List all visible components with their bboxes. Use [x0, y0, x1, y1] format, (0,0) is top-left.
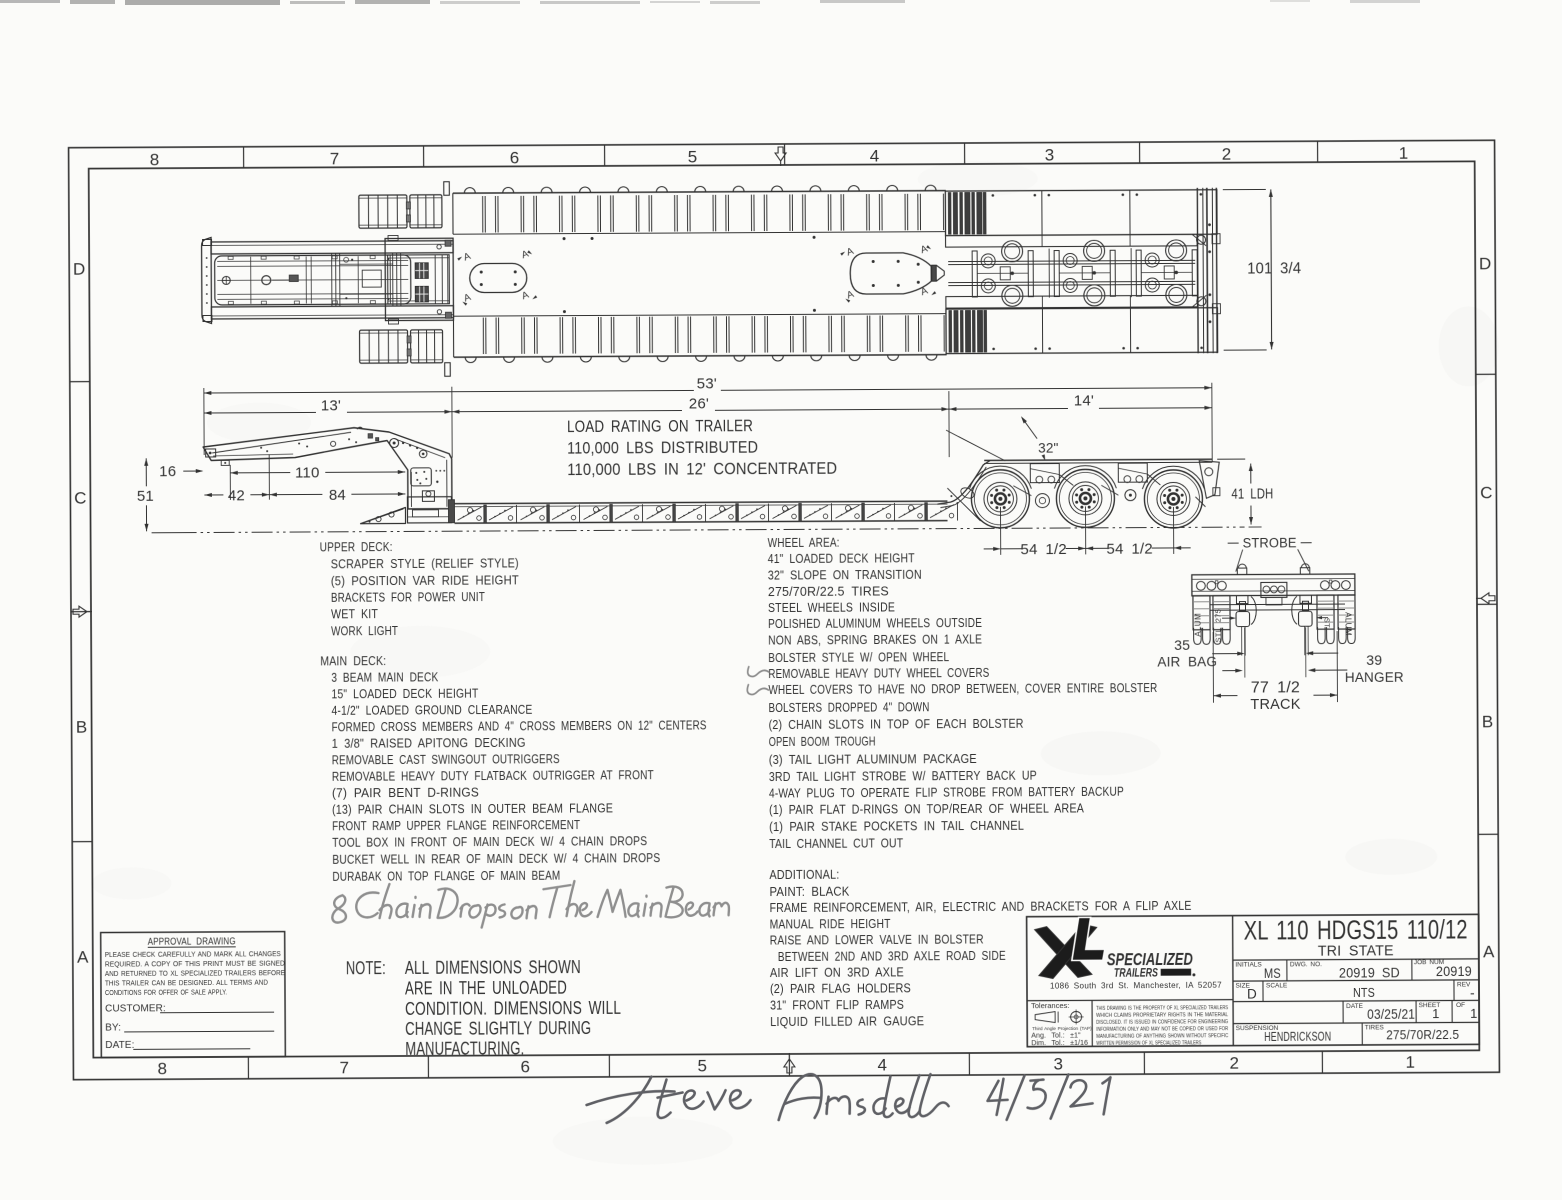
svg-text:20919: 20919 — [1436, 964, 1472, 979]
svg-text:MANUFACTURING.: MANUFACTURING. — [405, 1038, 524, 1059]
svg-text:1: 1 — [1405, 1053, 1415, 1072]
svg-text:16: 16 — [159, 463, 176, 480]
svg-text:DWG. NO.: DWG. NO. — [1290, 961, 1322, 968]
svg-text:8: 8 — [158, 1059, 168, 1078]
svg-text:39: 39 — [1366, 652, 1382, 668]
svg-text:MANUFACTURING OF ANYTHING SHOW: MANUFACTURING OF ANYTHING SHOWN WITHOUT … — [1096, 1033, 1228, 1040]
svg-text:8: 8 — [150, 150, 160, 169]
svg-text:OF: OF — [1456, 1002, 1465, 1009]
svg-text:WHICH CLAIMS PROPRIETARY RIGHT: WHICH CLAIMS PROPRIETARY RIGHTS IN THE M… — [1096, 1012, 1228, 1019]
svg-text:REV: REV — [1457, 981, 1471, 988]
svg-text:1086 South 3rd St. Manchester: 1086 South 3rd St. Manchester, IA 52057 — [1050, 981, 1222, 991]
svg-text:110,000 LBS DISTRIBUTED: 110,000 LBS DISTRIBUTED — [567, 439, 758, 458]
svg-text:ARE IN THE UNLOADED: ARE IN THE UNLOADED — [405, 978, 567, 999]
svg-text:NON ABS, SPRING BRAKES ON 1 AX: NON ABS, SPRING BRAKES ON 1 AXLE — [768, 631, 982, 647]
svg-text:B: B — [1482, 712, 1494, 731]
svg-text:3: 3 — [1045, 146, 1055, 165]
svg-text:PLEASE CHECK CAREFULLY AND MAR: PLEASE CHECK CAREFULLY AND MARK ALL CHAN… — [105, 949, 281, 959]
svg-text:BETWEEN 2ND AND 3RD AXLE ROAD: BETWEEN 2ND AND 3RD AXLE ROAD SIDE — [778, 948, 1006, 964]
svg-text:TOOL BOX IN FRONT OF MAIN DECK: TOOL BOX IN FRONT OF MAIN DECK W/ 4 CHAI… — [332, 833, 647, 850]
svg-text:51: 51 — [137, 488, 154, 505]
svg-text:6: 6 — [510, 148, 520, 167]
svg-text:1: 1 — [1470, 1006, 1478, 1021]
svg-text:(3) TAIL LIGHT ALUMINUM PACKAG: (3) TAIL LIGHT ALUMINUM PACKAGE — [769, 751, 977, 767]
svg-text:14': 14' — [1074, 392, 1094, 409]
svg-text:AIR LIFT ON 3RD AXLE: AIR LIFT ON 3RD AXLE — [770, 964, 904, 980]
svg-text:SPECIALIZED: SPECIALIZED — [1107, 949, 1193, 969]
svg-text:THIS TRAILER CAN BE DESIGNED.: THIS TRAILER CAN BE DESIGNED. ALL TERMS … — [105, 978, 268, 988]
svg-text:BOLSTERS DROPPED 4" DOWN: BOLSTERS DROPPED 4" DOWN — [768, 699, 929, 715]
svg-text:D: D — [1247, 987, 1257, 1002]
svg-text:CUSTOMER:: CUSTOMER: — [105, 1003, 166, 1014]
svg-text:110: 110 — [295, 464, 320, 481]
svg-text:INFORMATION ONLY AND MAY NOT B: INFORMATION ONLY AND MAY NOT BE COPIED O… — [1096, 1026, 1228, 1033]
svg-text:1 3/8" RAISED APITONG DECKING: 1 3/8" RAISED APITONG DECKING — [332, 735, 526, 751]
svg-text:1: 1 — [1399, 144, 1409, 163]
svg-text:35: 35 — [1174, 637, 1190, 653]
svg-text:REMOVABLE HEAVY DUTY WHEEL COV: REMOVABLE HEAVY DUTY WHEEL COVERS — [768, 665, 989, 681]
svg-text:TRACK: TRACK — [1250, 697, 1300, 713]
svg-text:XL 110 HDGS15 110/12: XL 110 HDGS15 110/12 — [1244, 914, 1468, 945]
svg-text:THIS DRAWING IS THE PROPERTY O: THIS DRAWING IS THE PROPERTY OF XL SPECI… — [1096, 1005, 1228, 1012]
svg-text:(5) POSITION VAR RIDE HEIGHT: (5) POSITION VAR RIDE HEIGHT — [331, 572, 519, 588]
svg-text:(7) PAIR BENT D-RINGS: (7) PAIR BENT D-RINGS — [332, 785, 479, 801]
svg-text:CONDITION. DIMENSIONS WILL: CONDITION. DIMENSIONS WILL — [405, 998, 621, 1019]
svg-text:AIR BAG: AIR BAG — [1157, 654, 1217, 669]
svg-text:NOTE:: NOTE: — [346, 958, 386, 978]
svg-text:D: D — [73, 260, 86, 279]
svg-text:LOAD RATING ON TRAILER: LOAD RATING ON TRAILER — [567, 417, 753, 436]
svg-text:A: A — [77, 948, 89, 967]
svg-text:(1) PAIR FLAT D-RINGS ON TOP/R: (1) PAIR FLAT D-RINGS ON TOP/REAR OF WHE… — [769, 800, 1084, 817]
svg-text:CONDITIONS FOR OFFER OF SALE A: CONDITIONS FOR OFFER OF SALE APPLY. — [105, 987, 227, 997]
svg-text:7: 7 — [340, 1058, 350, 1077]
svg-text:3: 3 — [1054, 1055, 1064, 1074]
svg-text:LIQUID FILLED AIR GAUGE: LIQUID FILLED AIR GAUGE — [770, 1013, 924, 1029]
svg-text:AND RETURNED TO XL SPECIALIZED: AND RETURNED TO XL SPECIALIZED TRAILERS … — [105, 968, 285, 978]
svg-text:53': 53' — [697, 375, 717, 392]
svg-text:OPEN BOOM TROUGH: OPEN BOOM TROUGH — [769, 734, 876, 750]
svg-text:WRITTEN PERMISSION OF XL SPECI: WRITTEN PERMISSION OF XL SPECIALIZED TRA… — [1096, 1040, 1201, 1047]
svg-text:275/70R/22.5: 275/70R/22.5 — [1386, 1027, 1459, 1042]
svg-text:BRACKETS FOR POWER UNIT: BRACKETS FOR POWER UNIT — [331, 589, 485, 605]
svg-text:1: 1 — [1432, 1006, 1440, 1021]
svg-text:Tolerances:: Tolerances: — [1031, 1001, 1069, 1010]
svg-text:B: B — [76, 718, 88, 737]
svg-text:4: 4 — [870, 146, 880, 165]
svg-text:STROBE: STROBE — [1243, 535, 1297, 550]
svg-text:54 1/2: 54 1/2 — [1020, 541, 1066, 558]
svg-text:FRONT RAMP UPPER FLANGE REINFO: FRONT RAMP UPPER FLANGE REINFORCEMENT — [332, 817, 580, 833]
svg-text:CHANGE SLIGHTLY DURING: CHANGE SLIGHTLY DURING — [405, 1018, 591, 1039]
svg-text:HENDRICKSON: HENDRICKSON — [1264, 1029, 1331, 1044]
svg-text:31" FRONT FLIP RAMPS: 31" FRONT FLIP RAMPS — [770, 997, 904, 1013]
svg-text:(13) PAIR CHAIN SLOTS IN OUTER: (13) PAIR CHAIN SLOTS IN OUTER BEAM FLAN… — [332, 800, 613, 816]
svg-text:BOLSTER STYLE W/ OPEN WHEEL: BOLSTER STYLE W/ OPEN WHEEL — [768, 649, 949, 665]
svg-text:D: D — [1479, 254, 1492, 273]
svg-text:FORMED CROSS MEMBERS AND 4" CR: FORMED CROSS MEMBERS AND 4" CROSS MEMBER… — [332, 717, 707, 734]
svg-text:41" LOADED DECK HEIGHT: 41" LOADED DECK HEIGHT — [768, 550, 915, 566]
svg-text:C: C — [1480, 483, 1493, 502]
svg-text:NTS: NTS — [1353, 985, 1375, 1000]
svg-text:MANUAL RIDE HEIGHT: MANUAL RIDE HEIGHT — [770, 916, 891, 932]
svg-text:2: 2 — [1230, 1054, 1240, 1073]
svg-text:REQUIRED. A COPY OF THIS PRIN: REQUIRED. A COPY OF THIS PRINT MUST BE S… — [105, 959, 285, 969]
svg-text:DATE: DATE — [1346, 1003, 1364, 1010]
svg-text:6: 6 — [521, 1057, 531, 1076]
svg-text:SCRAPER STYLE (RELIEF STYLE): SCRAPER STYLE (RELIEF STYLE) — [331, 555, 519, 571]
svg-text:REMOVABLE CAST SWINGOUT OUTRIG: REMOVABLE CAST SWINGOUT OUTRIGGERS — [332, 751, 560, 767]
svg-text:APPROVAL DRAWING: APPROVAL DRAWING — [148, 935, 236, 947]
svg-text:5: 5 — [698, 1056, 708, 1075]
svg-text:MS: MS — [1264, 966, 1281, 981]
svg-text:SCALE: SCALE — [1266, 982, 1288, 989]
svg-text:3RD TAIL LIGHT STROBE W/ BATTE: 3RD TAIL LIGHT STROBE W/ BATTERY BACK UP — [769, 768, 1037, 784]
svg-text:MAIN DECK:: MAIN DECK: — [320, 653, 386, 668]
svg-text:32": 32" — [1038, 441, 1059, 456]
svg-text:15" LOADED DECK HEIGHT: 15" LOADED DECK HEIGHT — [331, 686, 478, 702]
svg-text:UPPER DECK:: UPPER DECK: — [320, 539, 393, 554]
svg-text:2: 2 — [1222, 145, 1232, 164]
svg-text:RAISE AND LOWER VALVE IN BOLST: RAISE AND LOWER VALVE IN BOLSTER — [770, 931, 984, 947]
svg-text:POLISHED ALUMINUM WHEELS OUTSI: POLISHED ALUMINUM WHEELS OUTSIDE — [768, 615, 982, 631]
svg-text:DURABAK ON TOP FLANGE OF MAIN: DURABAK ON TOP FLANGE OF MAIN BEAM — [332, 868, 560, 884]
svg-text:BY:: BY: — [105, 1022, 121, 1033]
svg-text:C: C — [74, 489, 87, 508]
svg-text:TIRES: TIRES — [1365, 1024, 1385, 1031]
svg-text:TAIL CHANNEL CUT OUT: TAIL CHANNEL CUT OUT — [769, 835, 903, 851]
svg-text:101 3/4: 101 3/4 — [1247, 260, 1301, 277]
svg-text:20919 SD: 20919 SD — [1339, 965, 1400, 980]
svg-text:HANGER: HANGER — [1345, 670, 1404, 685]
svg-text:4: 4 — [878, 1055, 888, 1074]
svg-text:41 LDH: 41 LDH — [1231, 486, 1273, 502]
svg-text:110,000 LBS IN 12' CONCENTRAT: 110,000 LBS IN 12' CONCENTRATED — [567, 460, 837, 479]
svg-text:(1) PAIR STAKE POCKETS IN TAIL: (1) PAIR STAKE POCKETS IN TAIL CHANNEL — [769, 818, 1024, 834]
svg-text:4-WAY PLUG TO OPERATE FLIP STR: 4-WAY PLUG TO OPERATE FLIP STROBE FROM B… — [769, 784, 1124, 801]
svg-text:WORK LIGHT: WORK LIGHT — [331, 623, 398, 638]
svg-text:5: 5 — [688, 147, 698, 166]
svg-text:TRAILERS: TRAILERS — [1114, 968, 1158, 980]
svg-text:7: 7 — [330, 149, 340, 168]
svg-text:WET KIT: WET KIT — [331, 606, 378, 621]
svg-text:3 BEAM MAIN DECK: 3 BEAM MAIN DECK — [331, 669, 438, 685]
svg-text:(2) PAIR FLAG HOLDERS: (2) PAIR FLAG HOLDERS — [770, 980, 911, 996]
svg-text:(2) CHAIN SLOTS IN TOP OF EACH: (2) CHAIN SLOTS IN TOP OF EACH BOLSTER — [769, 716, 1024, 732]
svg-text:-: - — [1470, 984, 1475, 1000]
svg-text:ALL DIMENSIONS SHOWN: ALL DIMENSIONS SHOWN — [405, 957, 581, 978]
svg-text:WHEEL AREA:: WHEEL AREA: — [768, 535, 840, 550]
svg-text:WHEEL COVERS TO HAVE NO DROP B: WHEEL COVERS TO HAVE NO DROP BETWEEN, CO… — [768, 680, 1157, 697]
svg-text:DATE:: DATE: — [105, 1040, 134, 1051]
svg-text:275/70R/22.5 TIRES: 275/70R/22.5 TIRES — [768, 583, 889, 599]
svg-text:84: 84 — [329, 487, 346, 504]
svg-text:77 1/2: 77 1/2 — [1251, 679, 1300, 696]
svg-text:FRAME REINFORCEMENT, AIR, ELEC: FRAME REINFORCEMENT, AIR, ELECTRIC AND B… — [770, 898, 1192, 915]
svg-text:13': 13' — [321, 397, 341, 414]
svg-text:A: A — [1483, 942, 1495, 961]
svg-text:32" SLOPE ON TRANSITION: 32" SLOPE ON TRANSITION — [768, 567, 922, 583]
svg-text:4-1/2" LOADED GROUND CLEARANCE: 4-1/2" LOADED GROUND CLEARANCE — [331, 702, 532, 718]
svg-text:PAINT: BLACK: PAINT: BLACK — [769, 884, 849, 899]
svg-text:54 1/2: 54 1/2 — [1106, 541, 1152, 558]
svg-text:DISCLOSED. IT IS ISSUED IN CO: DISCLOSED. IT IS ISSUED IN CONFIDENCE FO… — [1096, 1019, 1228, 1026]
svg-text:INITIALS: INITIALS — [1235, 961, 1262, 968]
svg-text:Dim. Tol.: ±1/16: Dim. Tol.: ±1/16 — [1031, 1038, 1088, 1047]
svg-text:STEEL WHEELS INSIDE: STEEL WHEELS INSIDE — [768, 599, 895, 615]
svg-text:TRI STATE: TRI STATE — [1318, 943, 1394, 959]
svg-text:ADDITIONAL:: ADDITIONAL: — [769, 867, 839, 882]
svg-text:BUCKET WELL IN REAR OF MAIN DE: BUCKET WELL IN REAR OF MAIN DECK W/ 4 CH… — [332, 850, 660, 867]
svg-text:REMOVABLE HEAVY DUTY FLATBACK: REMOVABLE HEAVY DUTY FLATBACK OUTRIGGER … — [332, 767, 654, 784]
svg-text:26': 26' — [689, 395, 709, 412]
svg-text:03/25/21: 03/25/21 — [1367, 1007, 1415, 1022]
